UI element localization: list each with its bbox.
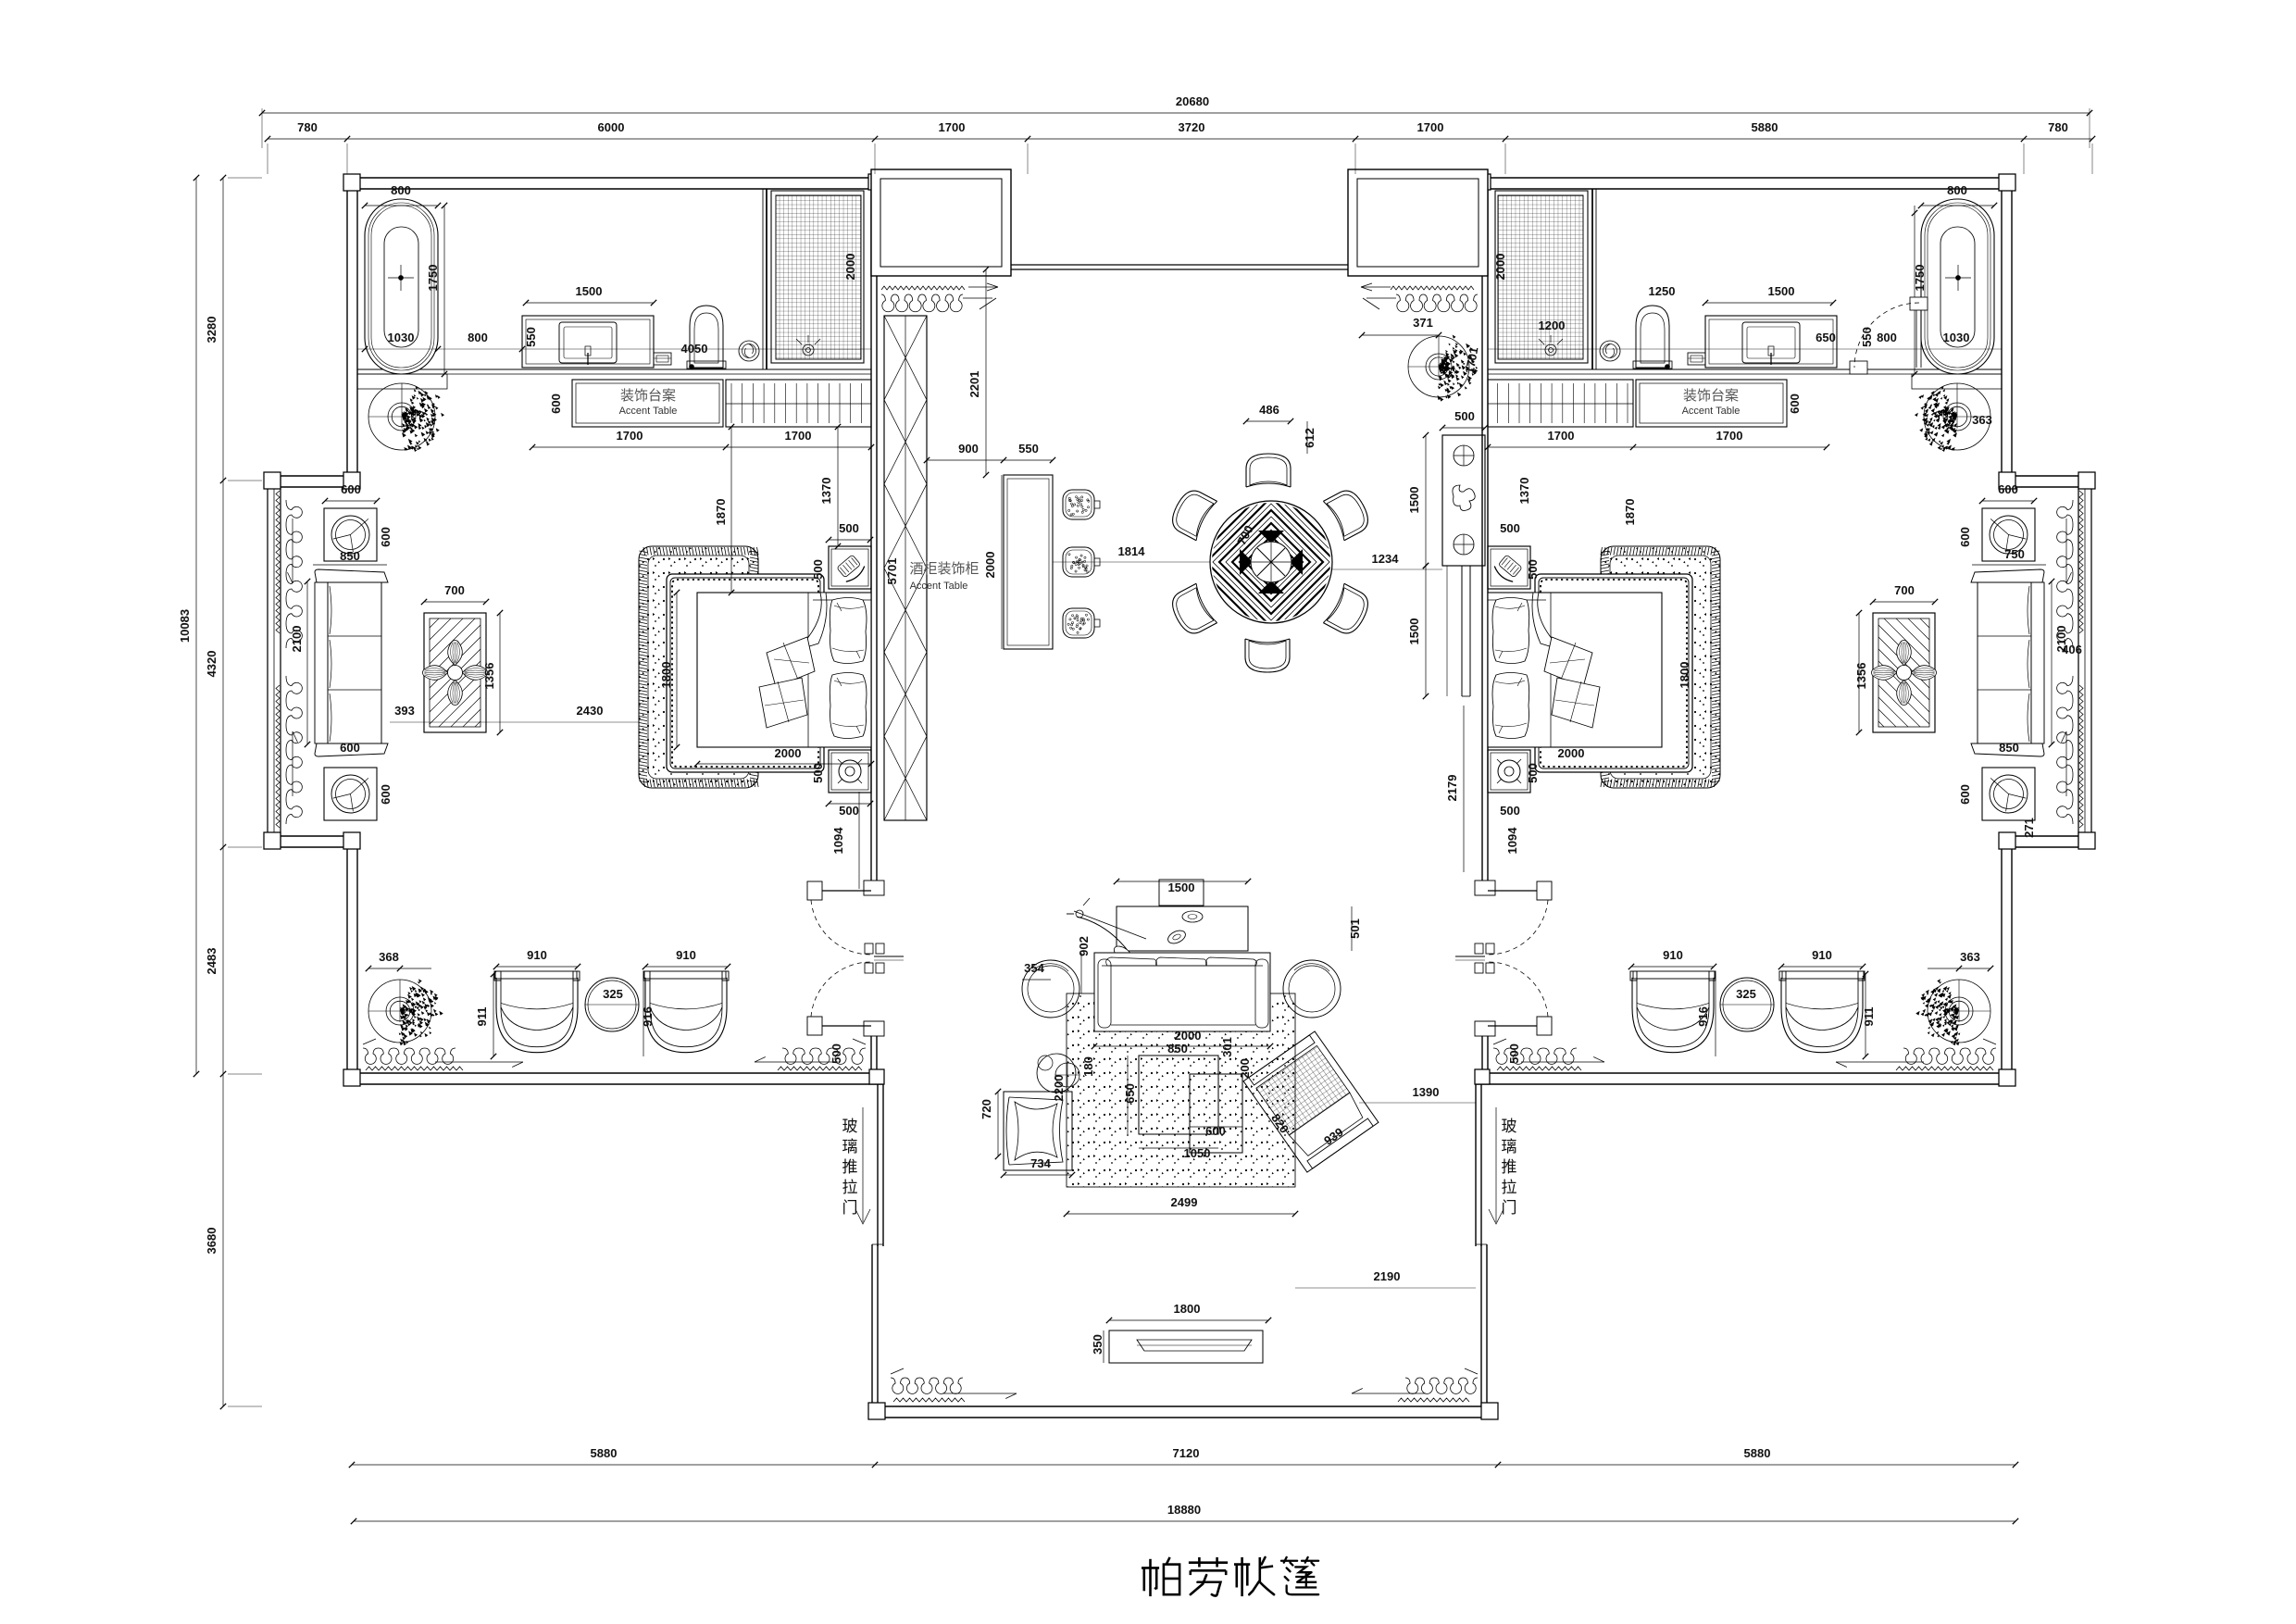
svg-text:1370: 1370	[1517, 478, 1531, 505]
svg-text:推: 推	[1502, 1158, 1517, 1176]
svg-text:1500: 1500	[576, 284, 603, 298]
svg-text:363: 363	[1960, 950, 1980, 964]
svg-text:Accent Table: Accent Table	[910, 581, 968, 592]
svg-text:3720: 3720	[1179, 120, 1205, 134]
svg-text:璃: 璃	[842, 1138, 858, 1156]
svg-text:2000: 2000	[1493, 254, 1507, 281]
svg-text:2100: 2100	[290, 626, 304, 653]
svg-text:玻: 玻	[842, 1118, 858, 1135]
svg-text:600: 600	[549, 394, 563, 414]
svg-text:1800: 1800	[1678, 662, 1691, 689]
svg-text:354: 354	[1024, 961, 1044, 975]
svg-text:门: 门	[842, 1199, 858, 1217]
svg-text:1500: 1500	[1407, 618, 1421, 645]
svg-text:916: 916	[1696, 1006, 1710, 1027]
svg-text:1356: 1356	[482, 663, 496, 690]
svg-text:20680: 20680	[1176, 94, 1209, 108]
svg-text:200: 200	[1238, 1058, 1252, 1079]
svg-text:612: 612	[1303, 428, 1316, 448]
svg-text:371: 371	[1413, 316, 1433, 330]
svg-text:393: 393	[394, 704, 415, 718]
svg-text:5880: 5880	[1744, 1446, 1771, 1460]
svg-text:推: 推	[842, 1158, 858, 1176]
svg-text:5701: 5701	[885, 558, 899, 585]
svg-text:720: 720	[980, 1099, 993, 1119]
svg-text:325: 325	[603, 987, 623, 1001]
svg-text:800: 800	[1877, 331, 1897, 344]
svg-text:4050: 4050	[681, 342, 708, 356]
svg-text:500: 500	[811, 763, 825, 783]
svg-text:1050: 1050	[1184, 1146, 1211, 1160]
svg-text:700: 700	[444, 583, 465, 597]
svg-text:1800: 1800	[1174, 1302, 1201, 1316]
svg-text:2000: 2000	[775, 746, 802, 760]
svg-text:2000: 2000	[843, 254, 857, 281]
svg-text:5880: 5880	[1752, 120, 1778, 134]
svg-text:2190: 2190	[1374, 1269, 1401, 1283]
svg-text:600: 600	[1998, 482, 2018, 496]
svg-text:902: 902	[1077, 936, 1091, 956]
svg-text:1094: 1094	[831, 827, 845, 855]
svg-text:500: 500	[1454, 409, 1475, 423]
svg-text:门: 门	[1502, 1199, 1517, 1217]
svg-text:1370: 1370	[819, 478, 833, 505]
svg-text:550: 550	[524, 327, 538, 347]
svg-text:1356: 1356	[1854, 663, 1868, 690]
svg-text:玻: 玻	[1502, 1118, 1517, 1135]
svg-text:1700: 1700	[1548, 429, 1575, 443]
svg-text:910: 910	[676, 948, 696, 962]
svg-text:910: 910	[527, 948, 547, 962]
svg-text:2000: 2000	[1558, 746, 1585, 760]
svg-text:500: 500	[839, 521, 859, 535]
svg-text:600: 600	[379, 784, 393, 805]
svg-text:910: 910	[1663, 948, 1683, 962]
svg-text:500: 500	[1526, 559, 1540, 580]
svg-text:1500: 1500	[1407, 487, 1421, 514]
svg-text:800: 800	[391, 183, 411, 197]
svg-text:2000: 2000	[983, 552, 997, 579]
svg-text:5880: 5880	[591, 1446, 618, 1460]
svg-text:10083: 10083	[178, 609, 192, 643]
svg-text:1870: 1870	[714, 499, 728, 526]
svg-text:500: 500	[839, 804, 859, 818]
svg-text:拉: 拉	[1502, 1179, 1517, 1196]
svg-text:1700: 1700	[1417, 120, 1444, 134]
svg-text:2200: 2200	[1052, 1075, 1066, 1102]
svg-text:650: 650	[1123, 1083, 1137, 1104]
svg-text:700: 700	[1894, 583, 1915, 597]
svg-text:486: 486	[1259, 403, 1279, 417]
svg-text:301: 301	[1220, 1037, 1234, 1057]
svg-text:501: 501	[1348, 918, 1362, 939]
svg-text:1390: 1390	[1413, 1085, 1440, 1099]
svg-text:1750: 1750	[426, 265, 440, 292]
svg-text:780: 780	[2048, 120, 2068, 134]
svg-text:800: 800	[1947, 183, 1967, 197]
svg-text:4320: 4320	[205, 651, 218, 678]
svg-text:1030: 1030	[388, 331, 415, 344]
svg-text:2499: 2499	[1171, 1195, 1198, 1209]
svg-text:18880: 18880	[1167, 1503, 1201, 1517]
svg-text:1250: 1250	[1649, 284, 1676, 298]
svg-text:800: 800	[468, 331, 488, 344]
svg-text:600: 600	[1788, 394, 1802, 414]
svg-text:1030: 1030	[1943, 331, 1970, 344]
svg-text:7120: 7120	[1173, 1446, 1200, 1460]
svg-text:500: 500	[1507, 1043, 1521, 1064]
svg-text:780: 780	[297, 120, 318, 134]
svg-text:350: 350	[1091, 1334, 1104, 1355]
svg-text:271: 271	[2022, 818, 2036, 838]
svg-text:1700: 1700	[785, 429, 812, 443]
svg-text:406: 406	[2062, 643, 2082, 656]
svg-text:500: 500	[830, 1043, 843, 1064]
svg-text:600: 600	[1958, 527, 1972, 547]
svg-text:1814: 1814	[1118, 544, 1146, 558]
svg-text:酒柜装饰柜: 酒柜装饰柜	[909, 561, 979, 577]
svg-text:900: 900	[958, 442, 979, 456]
svg-text:600: 600	[340, 741, 360, 755]
svg-text:1700: 1700	[1716, 429, 1743, 443]
svg-text:1750: 1750	[1913, 265, 1927, 292]
svg-text:2000: 2000	[1175, 1029, 1202, 1043]
svg-text:6000: 6000	[598, 120, 625, 134]
svg-text:550: 550	[1018, 442, 1039, 456]
svg-text:1094: 1094	[1505, 827, 1519, 855]
svg-text:Accent Table: Accent Table	[619, 406, 678, 417]
svg-text:325: 325	[1736, 987, 1756, 1001]
svg-text:363: 363	[1972, 413, 1992, 427]
svg-text:500: 500	[1500, 804, 1520, 818]
svg-text:1870: 1870	[1623, 499, 1637, 526]
svg-text:500: 500	[1526, 763, 1540, 783]
svg-text:500: 500	[811, 559, 825, 580]
svg-text:1200: 1200	[1539, 319, 1566, 332]
svg-text:装饰台案: 装饰台案	[620, 387, 676, 404]
svg-text:850: 850	[340, 549, 360, 563]
svg-text:850: 850	[1999, 741, 2019, 755]
svg-text:650: 650	[1816, 331, 1836, 344]
svg-text:500: 500	[1500, 521, 1520, 535]
svg-text:600: 600	[1205, 1124, 1226, 1138]
svg-text:180: 180	[1081, 1056, 1095, 1077]
svg-text:600: 600	[379, 527, 393, 547]
svg-text:911: 911	[1862, 1007, 1876, 1027]
svg-text:916: 916	[641, 1006, 655, 1027]
svg-text:2179: 2179	[1445, 775, 1459, 802]
svg-text:911: 911	[475, 1007, 489, 1027]
svg-text:910: 910	[1812, 948, 1832, 962]
svg-text:2201: 2201	[967, 371, 981, 398]
svg-text:368: 368	[379, 950, 399, 964]
svg-text:2430: 2430	[577, 704, 604, 718]
svg-text:1500: 1500	[1768, 284, 1795, 298]
svg-text:1700: 1700	[617, 429, 643, 443]
svg-text:1234: 1234	[1372, 552, 1400, 566]
svg-text:3680: 3680	[205, 1228, 218, 1255]
svg-text:600: 600	[1958, 784, 1972, 805]
svg-text:750: 750	[2004, 547, 2025, 561]
svg-text:装饰台案: 装饰台案	[1683, 387, 1739, 404]
svg-text:734: 734	[1030, 1156, 1051, 1170]
svg-text:Accent Table: Accent Table	[1682, 406, 1741, 417]
svg-text:璃: 璃	[1502, 1138, 1517, 1156]
svg-text:2483: 2483	[205, 948, 218, 975]
svg-text:1500: 1500	[1168, 881, 1195, 894]
svg-text:1800: 1800	[659, 662, 673, 689]
svg-text:3280: 3280	[205, 317, 218, 344]
svg-text:600: 600	[341, 482, 361, 496]
svg-text:1700: 1700	[939, 120, 966, 134]
svg-text:850: 850	[1167, 1042, 1188, 1056]
svg-text:拉: 拉	[842, 1179, 858, 1196]
